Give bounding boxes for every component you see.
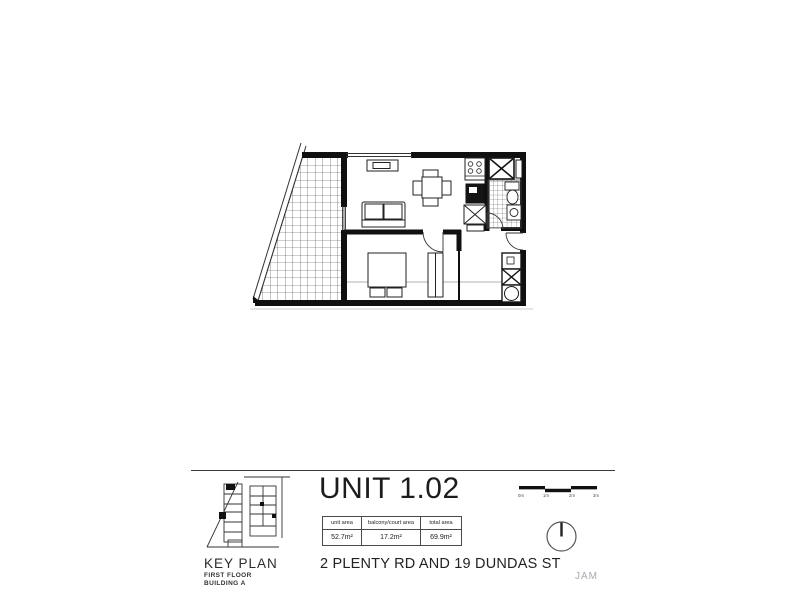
scale-label: 0m [518,493,524,498]
scale-label: 3m [593,493,600,498]
scale-label: 1m [543,493,550,498]
areas-table-header: total area [421,517,462,530]
dining-table [413,170,451,206]
scale-bar: 0m 1m 2m 3m [518,483,600,499]
laundry-stack [502,253,521,302]
titleblock-divider [191,470,615,471]
areas-table-header: unit area [323,517,362,530]
areas-table-header-row: unit area balcony/court area total area [323,517,462,530]
linen-cupboard [489,158,522,179]
project-address: 2 PLENTY RD AND 19 DUNDAS ST [320,556,561,572]
scale-label: 2m [569,493,576,498]
areas-table-value-row: 52.7m² 17.2m² 69.9m² [323,530,462,546]
areas-table-header: balcony/court area [362,517,421,530]
bed [368,253,406,297]
key-plan-drawing [198,474,294,558]
key-plan-floor-label: FIRST FLOOR [204,572,252,579]
total-area-value: 69.9m² [421,530,462,546]
drawing-sheet: KEY PLAN FIRST FLOOR BUILDING A UNIT 1.0… [0,0,800,600]
kitchen-cupboard [464,205,486,231]
key-plan-building-label: BUILDING A [204,580,246,587]
key-plan-title: KEY PLAN [204,556,278,571]
north-arrow-icon [545,520,579,554]
cooktop [465,158,485,180]
bathroom [488,180,521,228]
wardrobe [428,253,443,297]
basin [507,205,521,220]
floor-plan [240,135,540,320]
kitchen-sink [466,184,484,203]
tv-unit [367,160,398,171]
watermark-text: JAM [575,571,598,582]
areas-table: unit area balcony/court area total area … [322,516,462,546]
unit-title: UNIT 1.02 [319,472,460,506]
unit-area-value: 52.7m² [323,530,362,546]
sofa [362,202,405,227]
balcony-area [253,143,344,303]
balcony-area-value: 17.2m² [362,530,421,546]
